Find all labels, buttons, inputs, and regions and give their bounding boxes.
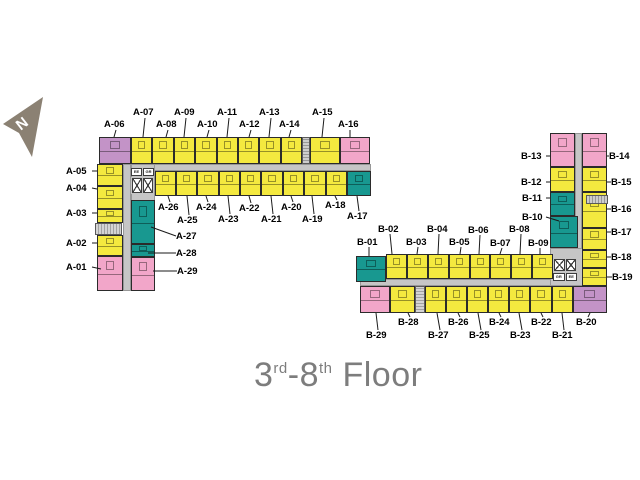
leader-line bbox=[312, 196, 314, 214]
leader-line bbox=[376, 313, 378, 330]
leader-line bbox=[143, 118, 145, 137]
unit-label-a-12: A-12 bbox=[239, 119, 260, 130]
unit-label-b-18: B-18 bbox=[611, 252, 632, 263]
unit-label-a-20: A-20 bbox=[281, 202, 302, 213]
unit-label-b-20: B-20 bbox=[576, 317, 597, 328]
unit-label-b-04: B-04 bbox=[427, 224, 448, 235]
unit-label-a-28: A-28 bbox=[176, 248, 197, 259]
unit-label-b-13: B-13 bbox=[521, 151, 542, 162]
unit-label-a-11: A-11 bbox=[217, 107, 237, 118]
unit-label-b-29: B-29 bbox=[366, 330, 387, 341]
unit-label-b-10: B-10 bbox=[522, 212, 543, 223]
leader-line bbox=[546, 217, 559, 221]
leader-line bbox=[479, 235, 480, 254]
unit-label-a-27: A-27 bbox=[176, 231, 197, 242]
floor-title-word: Floor bbox=[333, 356, 423, 394]
unit-label-a-06: A-06 bbox=[104, 119, 125, 130]
unit-label-a-25: A-25 bbox=[177, 215, 198, 226]
leader-line bbox=[357, 196, 359, 211]
leader-line bbox=[166, 130, 168, 137]
unit-label-b-22: B-22 bbox=[531, 317, 552, 328]
leader-line bbox=[322, 118, 324, 137]
unit-label-b-15: B-15 bbox=[611, 177, 632, 188]
leader-lines bbox=[92, 118, 612, 330]
unit-label-a-29: A-29 bbox=[177, 266, 198, 277]
leader-line bbox=[207, 130, 209, 137]
unit-label-a-14: A-14 bbox=[279, 119, 300, 130]
unit-label-b-25: B-25 bbox=[469, 330, 490, 341]
unit-label-a-05: A-05 bbox=[66, 166, 87, 177]
north-arrow: N bbox=[3, 97, 43, 157]
leader-line bbox=[92, 188, 97, 189]
floor-title: 3rd-8th Floor bbox=[254, 356, 422, 395]
leader-line bbox=[390, 234, 392, 254]
unit-label-b-09: B-09 bbox=[528, 238, 549, 249]
leader-line bbox=[519, 313, 522, 330]
unit-label-a-15: A-15 bbox=[312, 107, 333, 118]
leader-line bbox=[151, 227, 176, 236]
unit-label-a-10: A-10 bbox=[197, 119, 218, 130]
unit-label-b-19: B-19 bbox=[612, 272, 633, 283]
unit-label-b-16: B-16 bbox=[611, 204, 632, 215]
unit-label-b-26: B-26 bbox=[448, 317, 469, 328]
leader-line bbox=[227, 118, 229, 137]
leader-line bbox=[269, 118, 271, 137]
unit-label-b-06: B-06 bbox=[468, 225, 489, 236]
leader-line bbox=[437, 313, 440, 330]
unit-label-a-24: A-24 bbox=[196, 202, 217, 213]
unit-label-b-14: B-14 bbox=[609, 151, 630, 162]
unit-label-b-27: B-27 bbox=[428, 330, 449, 341]
unit-label-b-07: B-07 bbox=[490, 238, 511, 249]
unit-label-b-05: B-05 bbox=[449, 237, 470, 248]
unit-label-a-04: A-04 bbox=[66, 183, 87, 194]
unit-label-a-08: A-08 bbox=[156, 119, 177, 130]
leader-line bbox=[289, 130, 291, 137]
unit-label-a-17: A-17 bbox=[347, 211, 368, 222]
unit-label-b-24: B-24 bbox=[489, 317, 510, 328]
leader-line bbox=[460, 247, 461, 254]
leader-line bbox=[184, 118, 186, 137]
leader-line bbox=[228, 196, 230, 214]
floorplan-stage: N 3rd-8th Floor EEGRGREEA-07A-09A-11A-13… bbox=[0, 0, 640, 480]
floor-title-ordinal-1: rd bbox=[273, 360, 287, 377]
leader-line bbox=[249, 196, 251, 203]
unit-label-a-18: A-18 bbox=[325, 200, 346, 211]
unit-label-a-03: A-03 bbox=[66, 208, 87, 219]
unit-label-a-02: A-02 bbox=[66, 238, 87, 249]
leader-line bbox=[562, 313, 564, 330]
unit-label-a-22: A-22 bbox=[239, 203, 260, 214]
unit-label-b-12: B-12 bbox=[521, 177, 542, 188]
unit-label-a-09: A-09 bbox=[174, 107, 195, 118]
unit-label-a-19: A-19 bbox=[302, 214, 323, 225]
unit-label-b-23: B-23 bbox=[510, 330, 531, 341]
unit-label-a-21: A-21 bbox=[261, 214, 282, 225]
leader-line bbox=[249, 130, 251, 137]
unit-label-a-23: A-23 bbox=[218, 214, 239, 225]
unit-label-b-03: B-03 bbox=[406, 237, 427, 248]
leader-line bbox=[271, 196, 273, 214]
unit-label-b-21: B-21 bbox=[552, 330, 573, 341]
unit-label-b-28: B-28 bbox=[398, 317, 419, 328]
unit-label-a-07: A-07 bbox=[133, 107, 154, 118]
unit-label-b-08: B-08 bbox=[509, 224, 530, 235]
unit-label-a-01: A-01 bbox=[66, 262, 87, 273]
leader-line bbox=[187, 196, 189, 215]
unit-label-b-17: B-17 bbox=[611, 227, 632, 238]
leader-line bbox=[417, 247, 418, 254]
unit-label-b-01: B-01 bbox=[357, 237, 378, 248]
leader-line bbox=[92, 267, 101, 269]
floor-title-number: 3 bbox=[254, 356, 273, 394]
unit-label-a-16: A-16 bbox=[338, 119, 359, 130]
leader-line bbox=[114, 130, 116, 137]
leader-line bbox=[438, 234, 439, 254]
unit-label-b-11: B-11 bbox=[522, 193, 542, 204]
unit-label-a-26: A-26 bbox=[158, 202, 179, 213]
floor-title-number-2: -8 bbox=[288, 356, 319, 394]
leader-line bbox=[520, 234, 521, 254]
leader-line bbox=[478, 313, 481, 330]
unit-label-a-13: A-13 bbox=[259, 107, 280, 118]
floor-title-ordinal-2: th bbox=[319, 360, 333, 377]
unit-label-b-02: B-02 bbox=[378, 224, 399, 235]
